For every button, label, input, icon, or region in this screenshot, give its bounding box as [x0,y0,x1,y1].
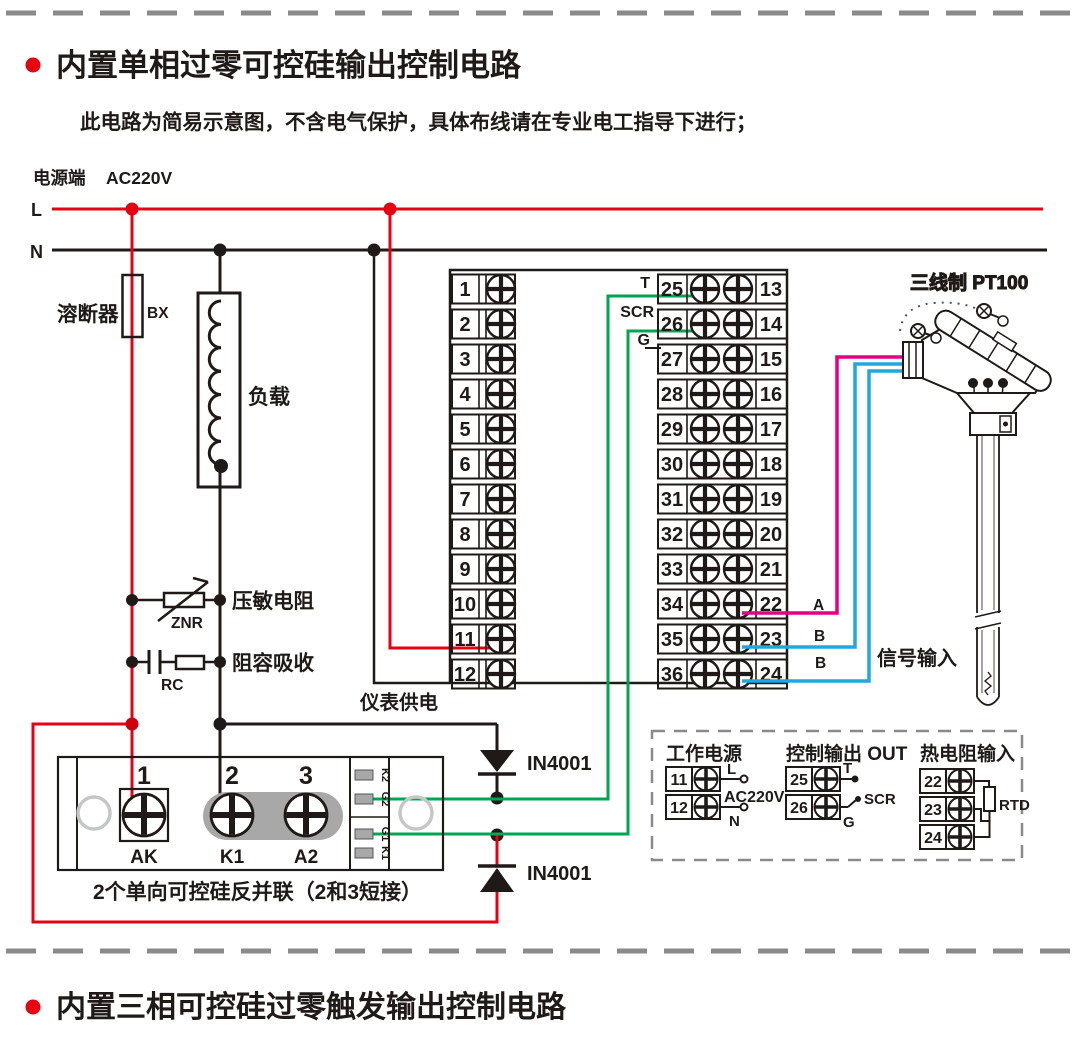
module-terminal1-number: 1 [137,762,151,790]
wire-a-label: A [813,597,824,614]
gate-pin [355,848,373,858]
terminal-number: 28 [661,384,683,406]
terminal-number: 36 [661,664,683,686]
terminal-number: 13 [760,279,782,301]
terminal-number: 27 [661,349,683,371]
terminal-number: 16 [760,384,782,406]
terminal-number: 1 [459,279,470,301]
junction-dot [214,244,227,257]
legend-rtd-title: 热电阻输入 [920,742,1015,765]
module-terminal1-label: AK [130,847,158,868]
junction-dot [214,656,226,668]
varistor-code-label: ZNR [171,615,203,632]
terminal-number: 19 [760,489,782,511]
load-label: 负载 [248,385,290,409]
terminal-number: 8 [459,524,470,546]
junction-dot [126,718,139,731]
legend-l-label: L [727,761,736,778]
legend-g-label: G [843,814,855,831]
scr-caption: 2个单向可控硅反并联（2和3短接） [93,880,422,904]
terminal-number: 29 [661,419,683,441]
legend-scr-label: SCR [864,791,896,808]
junction-dot [368,244,381,257]
wire-b1-label: B [814,628,825,645]
legend-terminal-25: 25 [790,772,808,789]
terminal-number: 7 [459,489,470,511]
module-terminal2-number: 2 [225,762,239,790]
line-n-label: N [30,242,43,262]
legend-terminal-26: 26 [790,800,808,817]
module-terminal2-label: K1 [220,847,245,868]
terminal-number: 2 [459,314,470,336]
terminal-number: 21 [760,559,782,581]
terminal-number: 33 [661,559,683,581]
pin-k2-label: K2 [379,768,391,782]
terminal-number: 12 [454,664,476,686]
terminal-number: 32 [661,524,683,546]
wiring-diagram: 内置单相过零可控硅输出控制电路 此电路为简易示意图，不含电气保护，具体布线请在专… [0,0,1080,1039]
legend-t-label: T [843,760,852,777]
legend-terminal-11: 11 [671,772,688,789]
junction-dot [126,656,138,668]
pt100-title: 三线制 PT100 [910,271,1028,294]
legend-terminal-23: 23 [924,802,942,819]
terminal-number: 35 [661,629,683,651]
junction-dot [384,203,397,216]
junction-dot [126,594,138,606]
bullet-icon [26,58,41,73]
terminal-number: 17 [760,419,782,441]
terminal-number: 11 [454,629,475,651]
meter-supply-label: 仪表供电 [359,691,439,714]
legend-n-label: N [729,813,740,830]
wire-b2-label: B [815,655,826,672]
legend-voltage-label: AC220V [724,789,785,806]
power-voltage-label: AC220V [106,168,172,188]
varistor-label: 压敏电阻 [232,589,314,613]
terminal-number: 14 [760,314,783,336]
legend-rtd-label: RTD [999,797,1030,814]
line-l-label: L [31,200,42,220]
diode-bottom-label: IN4001 [527,863,592,885]
signal-input-label: 信号输入 [877,646,957,670]
junction-dot [214,718,227,731]
junction-dot [126,203,139,216]
module-terminal3-number: 3 [299,762,313,790]
terminal-number: 4 [459,384,471,406]
legend-terminal-24: 24 [924,830,942,847]
terminal-number: 9 [459,559,470,581]
terminal-number: 34 [661,594,684,616]
junction-dot [214,594,226,606]
output-g-label: G [638,332,650,349]
gate-pin [355,829,373,839]
terminal-number: 31 [661,489,683,511]
section1-title: 内置单相过零可控硅输出控制电路 [56,48,522,83]
terminal-number: 3 [459,349,470,371]
output-t-label: T [640,275,650,292]
terminal-number: 5 [459,419,470,441]
terminal-number: 18 [760,454,782,476]
section2-title: 内置三相可控硅过零触发输出控制电路 [56,991,567,1024]
pin-k1-label: K1 [379,846,391,860]
fuse-label: 溶断器 [57,302,119,326]
fuse-code-label: BX [147,305,169,322]
rc-label: 阻容吸收 [232,651,314,675]
module-terminal3-label: A2 [294,847,318,868]
diode-top-label: IN4001 [527,753,592,775]
bullet-icon [26,1000,41,1015]
terminal-number: 15 [760,349,782,371]
terminal-number: 26 [661,314,683,336]
power-source-label: 电源端 [33,168,86,188]
pin-g1-label: G1 [379,827,391,842]
terminal-number: 10 [454,594,476,616]
pin-g2-label: G2 [379,792,391,807]
terminal-number: 30 [661,454,683,476]
terminal-number: 6 [459,454,470,476]
output-scr-label: SCR [620,304,654,321]
gate-pin [355,794,373,804]
rc-code-label: RC [161,677,183,694]
legend-terminal-12: 12 [670,800,688,817]
gate-pin [355,770,373,780]
legend-terminal-22: 22 [924,774,942,791]
terminal-number: 25 [661,279,683,301]
section1-note: 此电路为简易示意图，不含电气保护，具体布线请在专业电工指导下进行； [80,110,757,134]
terminal-number: 20 [760,524,782,546]
